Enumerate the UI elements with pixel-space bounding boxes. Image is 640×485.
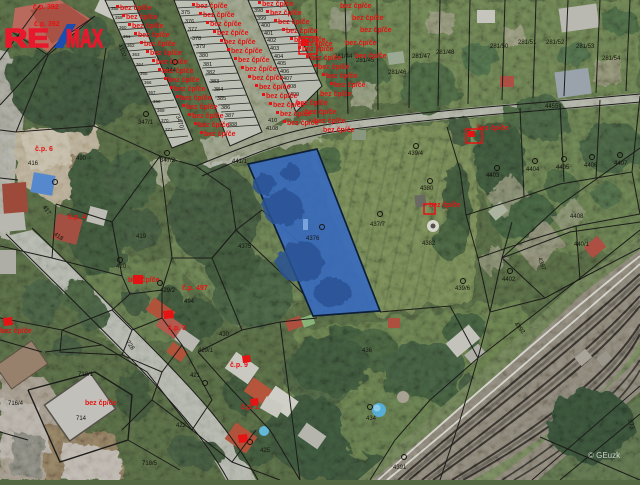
svg-text:436: 436 [362, 348, 373, 354]
svg-text:bez čp/če: bez čp/če [360, 27, 392, 34]
svg-text:bez čp/če: bez čp/če [310, 55, 342, 62]
svg-text:č.p. 497: č.p. 497 [182, 285, 208, 292]
svg-text:© GEuzk: © GEuzk [588, 451, 621, 460]
svg-text:365: 365 [140, 71, 148, 76]
svg-text:bez čp/če: bez čp/če [203, 12, 235, 19]
svg-text:439/6: 439/6 [455, 286, 471, 292]
svg-text:bez čp/če: bez čp/če [0, 328, 32, 335]
svg-text:bez čp/če: bez čp/če [85, 400, 117, 407]
svg-text:bez čp/če: bez čp/če [252, 75, 284, 82]
svg-text:bez čp/če: bez čp/če [286, 28, 318, 35]
svg-text:bez čp/če: bez čp/če [238, 57, 270, 64]
svg-text:383: 383 [210, 79, 219, 85]
svg-text:494: 494 [184, 299, 195, 305]
svg-text:402: 402 [267, 38, 276, 44]
svg-text:bez čp/če: bez čp/če [132, 23, 164, 30]
svg-text:401: 401 [264, 31, 273, 37]
svg-text:4406: 4406 [584, 163, 598, 169]
svg-text:4375: 4375 [238, 244, 252, 250]
svg-text:4108: 4108 [266, 126, 278, 132]
svg-text:4380: 4380 [420, 186, 434, 192]
svg-text:359: 359 [115, 15, 123, 20]
svg-text:281/53: 281/53 [576, 44, 595, 50]
svg-text:bez čp/če: bez čp/če [126, 14, 158, 21]
svg-text:bez čp/če: bez čp/če [266, 93, 298, 100]
svg-text:bez čp/če: bez čp/če [198, 122, 230, 129]
svg-text:399: 399 [257, 16, 266, 22]
svg-text:bez čp/če: bez čp/če [231, 48, 263, 55]
svg-text:377: 377 [188, 27, 197, 33]
svg-text:4403: 4403 [486, 173, 500, 179]
svg-text:714: 714 [76, 416, 87, 422]
svg-text:č.p. 392: č.p. 392 [33, 4, 59, 11]
svg-text:MAX: MAX [66, 25, 103, 53]
svg-text:bez čp/če: bez čp/če [144, 41, 176, 48]
svg-text:bez čp/če: bez čp/če [217, 30, 249, 37]
svg-text:4405: 4405 [556, 165, 570, 171]
svg-text:363: 363 [132, 52, 140, 57]
svg-text:384: 384 [214, 87, 223, 93]
svg-text:437/7: 437/7 [370, 222, 386, 228]
svg-text:439/4: 439/4 [408, 151, 424, 157]
svg-text:380: 380 [199, 53, 208, 59]
svg-text:bez čp/če: bez čp/če [334, 82, 366, 89]
svg-text:378: 378 [192, 36, 201, 42]
svg-text:bez čp/če: bez čp/če [150, 50, 182, 57]
svg-text:bez čp/če: bez čp/če [245, 66, 277, 73]
svg-text:718/1: 718/1 [78, 372, 94, 378]
svg-text:281/47: 281/47 [412, 54, 431, 60]
svg-text:č.p. 9: č.p. 9 [230, 362, 248, 369]
svg-text:410: 410 [268, 118, 277, 124]
svg-text:bez čp/če: bez čp/če [355, 53, 387, 60]
svg-text:bez čp/če: bez čp/če [320, 91, 352, 98]
svg-text:č.p. 3: č.p. 3 [168, 325, 186, 332]
svg-text:398: 398 [254, 8, 263, 14]
svg-text:347/1: 347/1 [138, 120, 154, 126]
svg-text:281/46: 281/46 [388, 70, 407, 76]
svg-text:716/4: 716/4 [8, 401, 24, 407]
svg-text:370: 370 [161, 118, 169, 123]
svg-text:bez čp/če: bez čp/če [192, 113, 224, 120]
svg-text:bez čp/če: bez čp/če [352, 15, 384, 22]
svg-text:bez čp/če: bez čp/če [323, 127, 355, 134]
svg-text:4455: 4455 [545, 104, 559, 110]
svg-text:4404: 4404 [526, 167, 540, 173]
svg-text:281/51: 281/51 [518, 40, 537, 46]
svg-text:405: 405 [277, 61, 286, 67]
svg-text:bez čp/če: bez čp/če [210, 21, 242, 28]
svg-text:bez čp/če: bez čp/če [138, 32, 170, 39]
svg-text:4407: 4407 [614, 161, 628, 167]
svg-text:bez čp/če: bez čp/če [168, 77, 200, 84]
svg-text:bez čp/če: bez čp/če [120, 5, 152, 12]
svg-text:bez čp/če: bez čp/če [429, 202, 461, 209]
svg-text:bez čp/če: bez čp/če [156, 59, 188, 66]
svg-text:4402: 4402 [502, 277, 516, 283]
svg-text:490: 490 [76, 156, 87, 162]
svg-text:385: 385 [217, 96, 226, 102]
svg-text:382: 382 [206, 70, 215, 76]
svg-text:375: 375 [181, 10, 190, 16]
svg-text:404: 404 [274, 54, 283, 60]
svg-text:430: 430 [219, 332, 230, 338]
svg-text:bez čp/če: bez čp/če [128, 277, 160, 284]
svg-text:407: 407 [283, 76, 292, 82]
svg-text:441/1: 441/1 [232, 159, 248, 165]
svg-text:bez čp/če: bez čp/če [224, 39, 256, 46]
svg-text:379: 379 [196, 44, 205, 50]
svg-text:360: 360 [119, 25, 127, 30]
svg-text:281/50: 281/50 [490, 44, 509, 50]
svg-text:bez čp/če: bez čp/če [204, 131, 236, 138]
svg-text:bez čp/če: bez čp/če [186, 104, 218, 111]
svg-text:4376: 4376 [306, 236, 320, 242]
svg-text:425: 425 [260, 448, 271, 454]
svg-text:bez čp/če: bez čp/če [318, 64, 350, 71]
svg-text:bez čp/če: bez čp/če [180, 95, 212, 102]
svg-text:361: 361 [123, 34, 131, 39]
svg-text:429/2: 429/2 [160, 288, 176, 294]
svg-text:386: 386 [221, 105, 230, 111]
svg-text:362: 362 [127, 43, 135, 48]
svg-text:č.p. 4: č.p. 4 [68, 214, 86, 221]
svg-text:bez čp/če: bez čp/če [162, 68, 194, 75]
svg-text:4391: 4391 [393, 465, 407, 471]
svg-text:4408: 4408 [570, 214, 584, 220]
svg-text:416: 416 [28, 161, 39, 167]
svg-text:371: 371 [165, 127, 173, 132]
svg-text:381: 381 [203, 62, 212, 68]
svg-text:bez čp/če: bez čp/če [270, 10, 302, 17]
svg-text:434: 434 [366, 416, 377, 422]
svg-text:368: 368 [153, 99, 161, 104]
svg-text:č.p. 6: č.p. 6 [35, 146, 53, 153]
svg-text:bez čp/če: bez čp/če [196, 3, 228, 10]
svg-text:400: 400 [261, 23, 270, 29]
svg-text:387: 387 [225, 113, 234, 119]
svg-text:bez čp/če: bez čp/če [305, 109, 337, 116]
svg-text:440/1: 440/1 [574, 242, 590, 248]
svg-text:347/2: 347/2 [160, 158, 176, 164]
svg-text:281/54: 281/54 [602, 56, 621, 62]
svg-text:281/48: 281/48 [436, 50, 455, 56]
svg-text:bez čp/če: bez čp/če [174, 86, 206, 93]
svg-text:281/52: 281/52 [546, 40, 565, 46]
svg-text:367: 367 [148, 90, 156, 95]
svg-text:bez čp/če: bez čp/če [259, 84, 291, 91]
svg-text:bez čp/če: bez čp/če [340, 3, 372, 10]
svg-text:419: 419 [136, 234, 147, 240]
svg-text:4382: 4382 [422, 241, 436, 247]
svg-text:421: 421 [190, 373, 201, 379]
svg-text:376: 376 [185, 19, 194, 25]
svg-text:bez čp/če: bez čp/če [314, 118, 346, 125]
svg-text:403: 403 [270, 46, 279, 52]
svg-text:369: 369 [157, 108, 165, 113]
svg-text:429/1: 429/1 [198, 348, 214, 354]
svg-text:bez čp/če: bez čp/če [345, 40, 377, 47]
svg-text:718/5: 718/5 [142, 461, 158, 467]
svg-text:bez čp/če: bez čp/če [262, 1, 294, 8]
svg-text:RE: RE [4, 23, 49, 53]
svg-text:bez čp/če: bez čp/če [278, 19, 310, 26]
svg-text:366: 366 [144, 80, 152, 85]
svg-text:bez čp/če: bez čp/če [296, 100, 328, 107]
svg-text:bez čp/če: bez čp/če [326, 73, 358, 80]
svg-text:422: 422 [176, 423, 187, 429]
svg-text:364: 364 [136, 62, 144, 67]
svg-text:420: 420 [116, 264, 127, 270]
